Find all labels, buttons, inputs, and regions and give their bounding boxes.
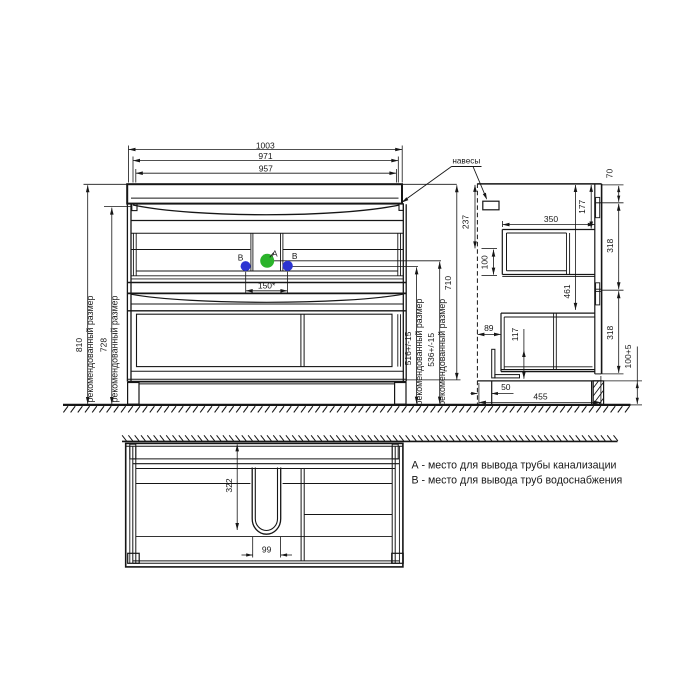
svg-text:318: 318 <box>605 238 615 252</box>
svg-text:70: 70 <box>604 169 614 179</box>
svg-text:рекомендованный размер: рекомендованный размер <box>414 298 424 405</box>
svg-text:237: 237 <box>460 215 470 229</box>
svg-text:971: 971 <box>258 151 272 161</box>
svg-text:рекомендованный размер: рекомендованный размер <box>85 295 95 402</box>
svg-text:350: 350 <box>544 214 558 224</box>
svg-text:150*: 150* <box>258 280 276 290</box>
svg-text:A: A <box>272 248 278 258</box>
svg-text:А - место для вывода трубы кан: А - место для вывода трубы канализации <box>412 460 617 472</box>
svg-text:100+5: 100+5 <box>623 344 633 368</box>
svg-text:455: 455 <box>533 391 547 401</box>
svg-text:322: 322 <box>224 478 234 492</box>
svg-text:177: 177 <box>577 199 587 213</box>
svg-text:рекомендованный размер: рекомендованный размер <box>109 295 119 402</box>
svg-text:50: 50 <box>501 382 511 392</box>
svg-text:318: 318 <box>605 325 615 339</box>
svg-text:рекомендованный размер: рекомендованный размер <box>437 299 447 406</box>
svg-text:710: 710 <box>443 276 453 290</box>
svg-text:728: 728 <box>98 338 108 352</box>
svg-text:536+/-15: 536+/-15 <box>426 333 436 367</box>
svg-text:810: 810 <box>74 338 84 352</box>
svg-text:В - место для вывода труб водо: В - место для вывода труб водоснабжения <box>412 475 623 487</box>
svg-text:B: B <box>238 252 244 262</box>
svg-text:117: 117 <box>510 327 520 341</box>
svg-text:1003: 1003 <box>256 140 275 150</box>
svg-text:516+/-15: 516+/-15 <box>403 331 413 365</box>
svg-text:B: B <box>292 251 298 261</box>
svg-text:89: 89 <box>484 323 494 333</box>
svg-text:навесы: навесы <box>452 157 480 166</box>
svg-text:957: 957 <box>259 164 273 174</box>
svg-text:99: 99 <box>262 545 272 555</box>
svg-text:461: 461 <box>562 284 572 298</box>
svg-text:100: 100 <box>480 255 490 269</box>
